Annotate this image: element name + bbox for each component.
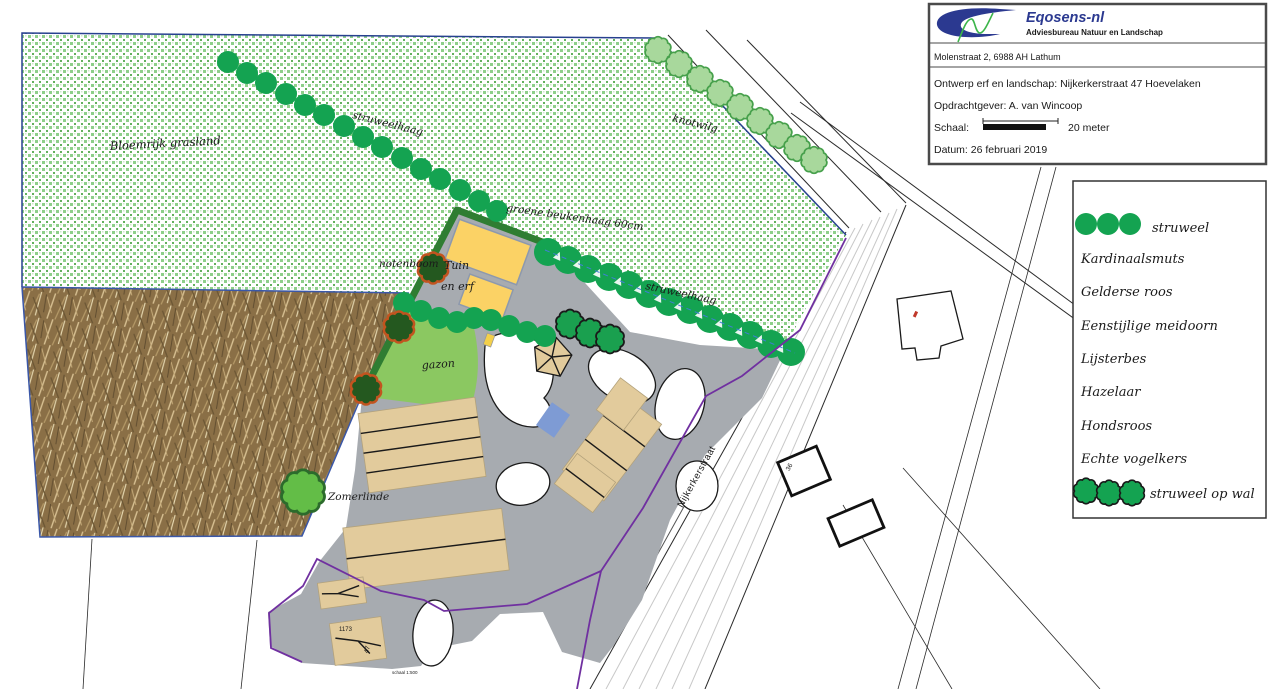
title-block: Eqosens-nl Adviesbureau Natuur en Landsc… bbox=[929, 4, 1266, 164]
legend-item-kardinaalsmuts: Kardinaalsmuts bbox=[1080, 252, 1185, 267]
date-line: Datum: 26 februari 2019 bbox=[934, 144, 1047, 156]
struweel-op-wal-icon bbox=[1074, 478, 1145, 506]
walnut-label: notenboom bbox=[379, 258, 439, 270]
fine-print-label: schaal 1:500 bbox=[392, 670, 418, 675]
legend: struweel Kardinaalsmuts Gelderse roos Ee… bbox=[1073, 181, 1266, 518]
struweel-icon bbox=[1075, 213, 1141, 235]
company-address: Molenstraat 2, 6988 AH Lathum bbox=[934, 52, 1061, 62]
outbuilding-outline bbox=[828, 500, 884, 546]
brand-name: Eqosens-nl bbox=[1026, 10, 1105, 26]
legend-item-lijsterbes: Lijsterbes bbox=[1080, 352, 1147, 367]
neighbour-house bbox=[329, 617, 386, 666]
barn bbox=[358, 397, 486, 493]
legend-item-gelderse-roos: Gelderse roos bbox=[1081, 285, 1173, 300]
parcel-number-label: 1173 bbox=[339, 627, 353, 633]
lawn-label: gazon bbox=[421, 357, 455, 372]
legend-item-hondsroos: Hondsroos bbox=[1080, 419, 1152, 434]
client-line: Opdrachtgever: A. van Wincoop bbox=[934, 100, 1082, 112]
garden-label-2: en erf bbox=[441, 280, 476, 293]
landscape-design-plan: Bloemrijk grasland struweelhaag knotwilg… bbox=[0, 0, 1269, 689]
legend-item-struweel: struweel bbox=[1152, 221, 1209, 236]
plan-canvas: Bloemrijk grasland struweelhaag knotwilg… bbox=[0, 0, 1269, 689]
project-title: Ontwerp erf en landschap: Nijkerkerstraa… bbox=[934, 78, 1201, 90]
legend-item-echte-vogelkers: Echte vogelkers bbox=[1080, 452, 1187, 467]
summer-lime-tree bbox=[282, 470, 325, 514]
summer-lime-label: Zomerlinde bbox=[327, 491, 389, 503]
legend-item-hazelaar: Hazelaar bbox=[1080, 385, 1141, 400]
brand-subtitle: Adviesbureau Natuur en Landschap bbox=[1026, 28, 1163, 37]
scale-value: 20 meter bbox=[1068, 122, 1110, 134]
neighbour-house-outline bbox=[897, 291, 963, 360]
scale-label: Schaal: bbox=[934, 122, 969, 134]
legend-item-eenstijlige-meidoorn: Eenstijlige meidoorn bbox=[1080, 319, 1218, 334]
legend-item-struweel-op-wal: struweel op wal bbox=[1150, 487, 1255, 502]
garden-label-1: Tuin bbox=[444, 259, 469, 272]
